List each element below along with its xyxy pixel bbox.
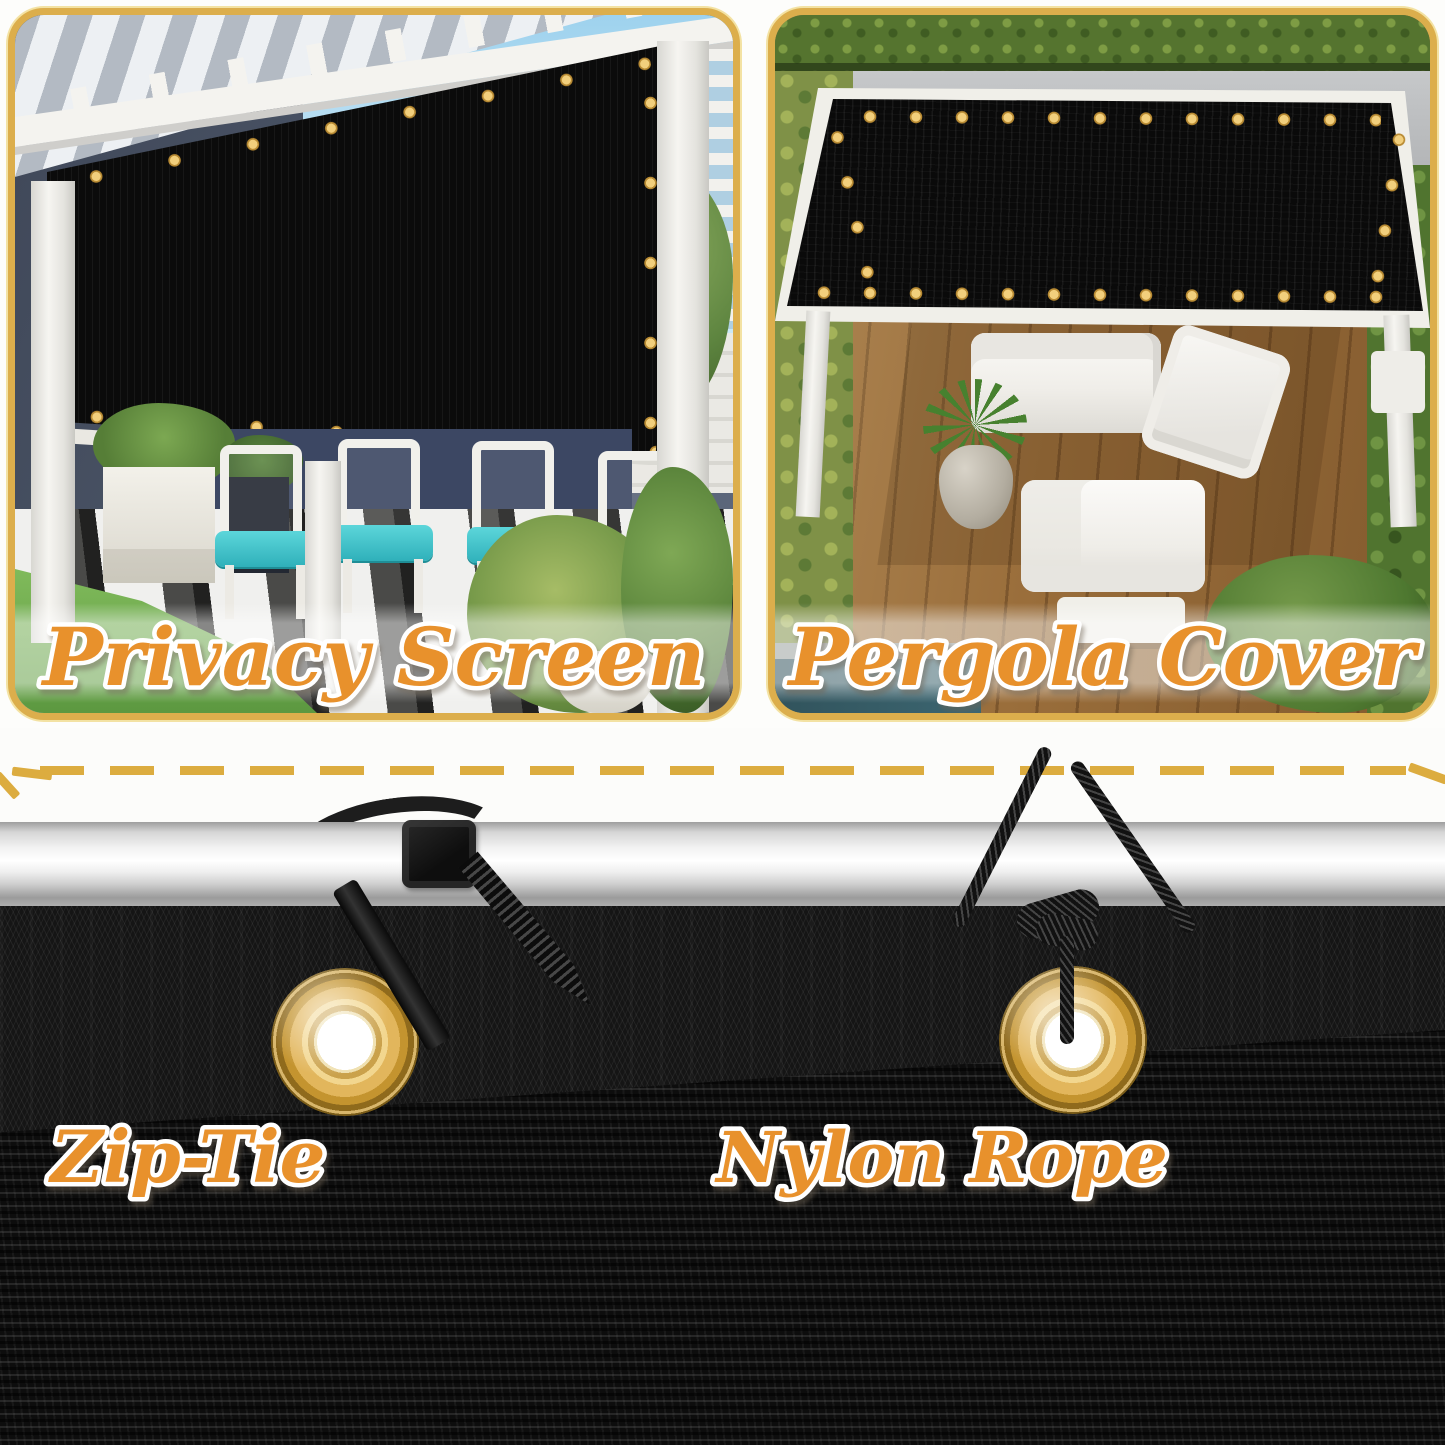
pergola-cover-photo-panel: Pergola Cover [768,8,1437,720]
zip-tie-head [402,820,476,888]
caption-privacy-screen: Privacy Screen [15,593,733,713]
pergola-post-left [31,181,75,643]
privacy-screen-photo-panel: Privacy Screen [8,8,740,720]
sofa [1021,480,1205,592]
grommet-col-right-icon [643,63,658,445]
pergola-cover-scene: Pergola Cover [775,15,1430,713]
white-planter-box [103,467,215,583]
mounting-detail-section: Zip-Tie Nylon Rope [0,728,1445,1445]
nylon-rope-strand-down [1060,936,1074,1044]
white-planter-right [1371,351,1425,413]
privacy-screen-scene: Privacy Screen [15,15,733,713]
pergola-cover-caption-text: Pergola Cover [787,610,1421,704]
product-image-collage: Privacy Screen [0,0,1445,1445]
privacy-screen-caption-text: Privacy Screen [41,610,706,704]
caption-pergola-cover: Pergola Cover [775,593,1430,713]
dashed-line [40,766,1406,775]
label-nylon-rope: Nylon Rope [692,1098,1192,1208]
metal-pole [0,822,1445,908]
label-zip-tie: Zip-Tie [28,1098,348,1208]
dashed-line-corner-right [1408,762,1445,784]
patio-chair [333,439,433,615]
nylon-rope-label-text: Nylon Rope [714,1116,1168,1199]
zip-tie-label-text: Zip-Tie [48,1114,326,1199]
